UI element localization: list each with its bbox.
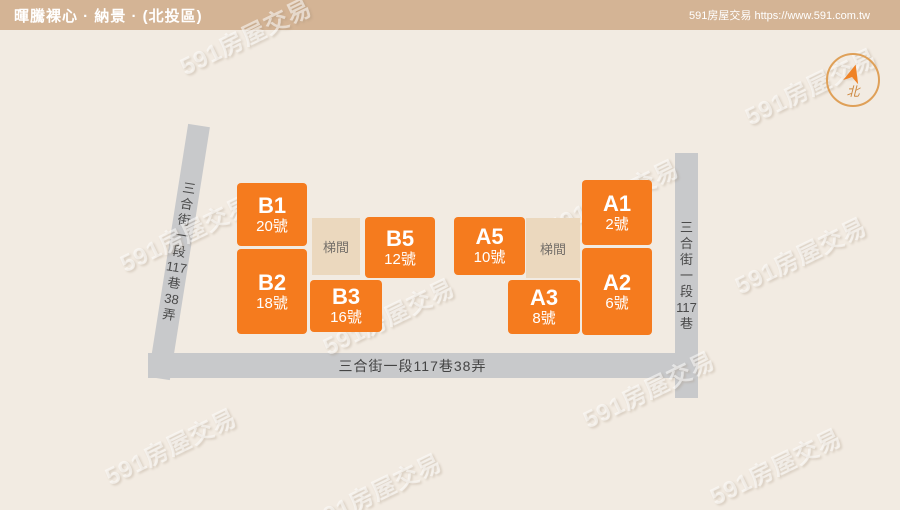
street-char: 三 — [680, 220, 693, 236]
street-bottom-label: 三合街一段117巷38弄 — [339, 356, 487, 376]
building-b2[interactable]: B2 18號 — [237, 249, 307, 334]
building-number: 6號 — [605, 295, 628, 313]
building-a2[interactable]: A2 6號 — [582, 248, 652, 335]
building-b3[interactable]: B3 16號 — [310, 280, 382, 332]
street-char: 一 — [680, 268, 693, 284]
street-char: 街 — [176, 211, 191, 229]
building-name: B3 — [332, 285, 360, 309]
stairwell-label: 梯間 — [540, 239, 566, 258]
street-char: 巷 — [166, 275, 181, 293]
building-number: 20號 — [256, 218, 288, 236]
street-char: 弄 — [161, 306, 176, 324]
building-a3[interactable]: A3 8號 — [508, 280, 580, 334]
street-left: 三 合 街 一 段 117 巷 38 弄 — [148, 124, 210, 380]
street-char: 段 — [171, 243, 186, 261]
watermark: 591房屋交易 — [728, 207, 872, 301]
site-plan-page: 暉騰裸心 · 納景 · (北投區) 591房屋交易 https://www.59… — [0, 0, 900, 510]
building-number: 8號 — [532, 310, 555, 328]
building-number: 12號 — [384, 251, 416, 269]
building-number: 18號 — [256, 295, 288, 313]
street-bottom: 三合街一段117巷38弄 — [148, 353, 677, 378]
street-char: 合 — [680, 236, 693, 252]
watermark: 591房屋交易 — [98, 398, 242, 492]
building-number: 2號 — [605, 216, 628, 234]
street-char: 街 — [680, 252, 693, 268]
header-bar: 暉騰裸心 · 納景 · (北投區) 591房屋交易 https://www.59… — [0, 0, 900, 30]
building-name: B5 — [386, 227, 414, 251]
building-b1[interactable]: B1 20號 — [237, 183, 307, 246]
stairwell-right: 梯間 — [526, 218, 580, 278]
building-a5[interactable]: A5 10號 — [454, 217, 525, 275]
building-name: A2 — [603, 271, 631, 295]
street-char: 三 — [181, 180, 196, 198]
site-credit: 591房屋交易 https://www.591.com.tw — [689, 7, 870, 23]
building-name: B1 — [258, 194, 286, 218]
building-name: A3 — [530, 286, 558, 310]
building-name: A5 — [475, 225, 503, 249]
stairwell-label: 梯間 — [323, 237, 349, 256]
street-char: 合 — [179, 196, 194, 214]
north-arrow-icon — [837, 59, 868, 87]
building-name: B2 — [258, 271, 286, 295]
north-compass: 北 — [826, 53, 880, 107]
watermark: 591房屋交易 — [703, 418, 847, 510]
building-a1[interactable]: A1 2號 — [582, 180, 652, 245]
street-char: 117 — [676, 300, 697, 316]
street-right: 三 合 街 一 段 117 巷 — [675, 153, 698, 398]
building-b5[interactable]: B5 12號 — [365, 217, 435, 278]
street-char: 段 — [680, 284, 693, 300]
building-number: 10號 — [474, 249, 506, 267]
street-char: 巷 — [680, 316, 693, 332]
building-number: 16號 — [330, 309, 362, 327]
building-name: A1 — [603, 192, 631, 216]
page-title: 暉騰裸心 · 納景 · (北投區) — [14, 5, 203, 26]
street-char: 一 — [174, 227, 189, 245]
watermark: 591房屋交易 — [303, 443, 447, 510]
stairwell-left: 梯間 — [312, 218, 360, 275]
